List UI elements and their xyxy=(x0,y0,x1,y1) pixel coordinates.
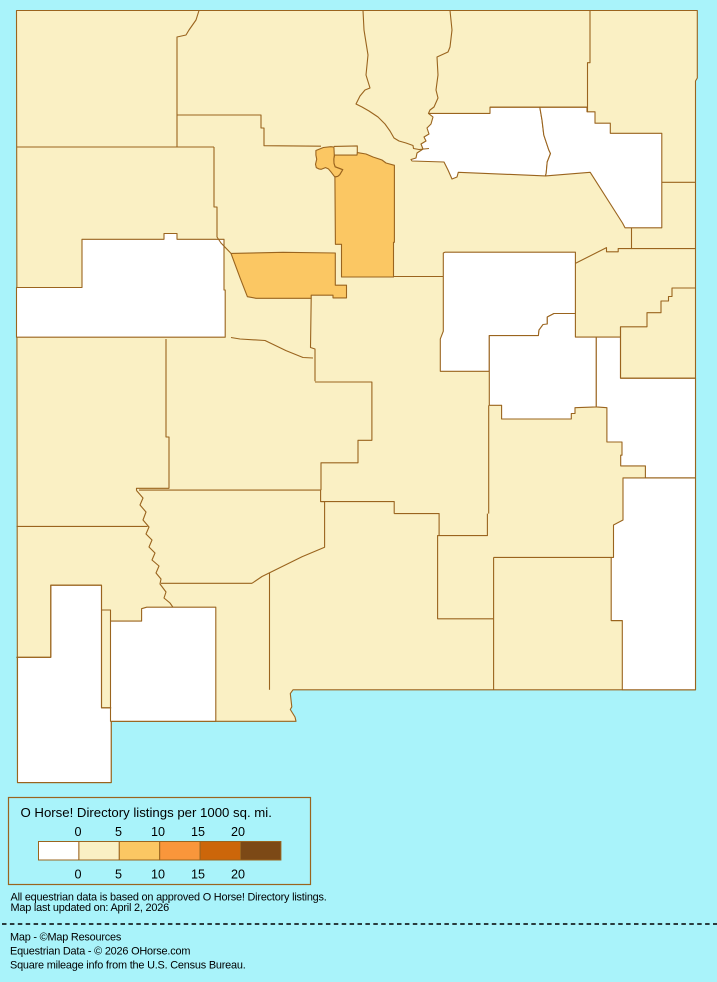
svg-text:Equestrian Data - © 2026 OHors: Equestrian Data - © 2026 OHorse.com xyxy=(10,946,190,958)
svg-text:Map - ©Map Resources: Map - ©Map Resources xyxy=(10,932,122,944)
svg-text:20: 20 xyxy=(231,868,245,882)
svg-text:10: 10 xyxy=(151,825,165,839)
svg-text:5: 5 xyxy=(115,825,122,839)
svg-text:20: 20 xyxy=(231,825,245,839)
svg-text:Square mileage info from the U: Square mileage info from the U.S. Census… xyxy=(10,960,246,972)
svg-text:15: 15 xyxy=(191,825,205,839)
svg-text:10: 10 xyxy=(151,868,165,882)
svg-text:0: 0 xyxy=(74,868,81,882)
svg-text:Map last updated on: April 2,: Map last updated on: April 2, 2026 xyxy=(11,902,170,914)
svg-text:15: 15 xyxy=(191,868,205,882)
svg-text:0: 0 xyxy=(74,825,81,839)
svg-text:O Horse! Directory listings pe: O Horse! Directory listings per 1000 sq.… xyxy=(21,805,272,820)
svg-text:5: 5 xyxy=(115,868,122,882)
